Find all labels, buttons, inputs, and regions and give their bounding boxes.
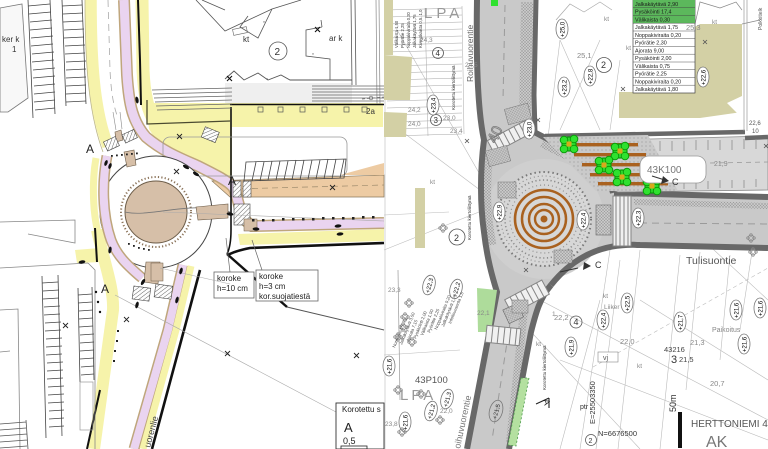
- svg-text:ker k: ker k: [2, 35, 20, 44]
- svg-text:A: A: [86, 142, 94, 156]
- svg-text:24,2: 24,2: [408, 107, 421, 114]
- svg-text:E=25503350: E=25503350: [588, 381, 597, 424]
- svg-text:+23,4: +23,4: [432, 97, 438, 113]
- svg-text:Jalkakäytävä 1,75: Jalkakäytävä 1,75: [635, 25, 678, 31]
- svg-text:Noppakiviraita 0,20: Noppakiviraita 0,20: [635, 79, 681, 85]
- svg-text:Pysäköinti 17,4: Pysäköinti 17,4: [635, 10, 672, 16]
- svg-text:Noppakiviraita 0,20: Noppakiviraita 0,20: [635, 33, 681, 39]
- svg-text:Noppakiviraita 0,20: Noppakiviraita 0,20: [406, 11, 411, 48]
- svg-text:1: 1: [552, 311, 556, 318]
- svg-text:21,3: 21,3: [690, 338, 705, 347]
- svg-text:Pysäköinti 2,00: Pysäköinti 2,00: [635, 56, 672, 62]
- svg-text:4: 4: [436, 49, 441, 58]
- svg-text:+21,6: +21,6: [388, 358, 394, 374]
- svg-text:N=6676500: N=6676500: [598, 429, 637, 438]
- svg-text:25,3: 25,3: [686, 23, 701, 32]
- svg-text:+21,6: +21,6: [404, 414, 410, 430]
- svg-text:C: C: [595, 260, 602, 270]
- svg-text:43K100: 43K100: [647, 165, 682, 176]
- svg-text:h=3 cm: h=3 cm: [259, 282, 286, 291]
- svg-text:Tulisuontie: Tulisuontie: [686, 255, 737, 267]
- svg-text:kt: kt: [604, 16, 609, 23]
- svg-text:„: „: [312, 50, 314, 56]
- svg-text:+23,2: +23,2: [563, 79, 569, 95]
- svg-text:24,5: 24,5: [465, 62, 478, 69]
- svg-text:2: 2: [601, 60, 606, 70]
- svg-text:kor.suojatiestä: kor.suojatiestä: [259, 292, 311, 301]
- svg-text:Jalkakäytävä 2,90: Jalkakäytävä 2,90: [635, 2, 678, 8]
- svg-text:+23,0: +23,0: [528, 121, 534, 137]
- svg-text:kt: kt: [712, 19, 717, 26]
- svg-text:+22,5: +22,5: [626, 295, 632, 311]
- svg-text:Korotettu kiertoliittymä: Korotettu kiertoliittymä: [542, 345, 547, 390]
- svg-text:AK: AK: [706, 434, 728, 449]
- svg-text:ptr: ptr: [580, 404, 589, 411]
- svg-text:2: 2: [454, 233, 459, 243]
- svg-text:+22,8: +22,8: [589, 68, 595, 84]
- svg-text:Korotettu kiertoliittymä: Korotettu kiertoliittymä: [467, 195, 472, 240]
- svg-text:+21,7: +21,7: [679, 314, 685, 330]
- svg-text:+22,9: +22,9: [498, 204, 504, 220]
- svg-text:Roihuvuorentie: Roihuvuorentie: [465, 25, 475, 82]
- svg-text:+22,6: +22,6: [702, 69, 708, 85]
- svg-text:10: 10: [752, 129, 759, 135]
- svg-text:Korotettu s: Korotettu s: [342, 405, 381, 414]
- svg-text:22,0: 22,0: [620, 337, 635, 346]
- svg-text:21,9: 21,9: [714, 161, 728, 168]
- svg-text:+21,9: +21,9: [570, 339, 576, 355]
- svg-text:0,5: 0,5: [343, 436, 356, 446]
- svg-text:50m: 50m: [668, 394, 678, 412]
- svg-text:+25,0: +25,0: [561, 21, 567, 37]
- svg-text:Pyörätie 2,25: Pyörätie 2,25: [635, 72, 667, 78]
- svg-text:23,8: 23,8: [385, 421, 398, 428]
- svg-text:h=10 cm: h=10 cm: [217, 284, 248, 293]
- svg-text:22,1: 22,1: [477, 310, 490, 317]
- svg-text:Paikoitus: Paikoitus: [712, 327, 741, 334]
- svg-text:kt: kt: [637, 363, 642, 370]
- svg-text:43216: 43216: [664, 345, 685, 354]
- svg-text:„: „: [263, 18, 265, 24]
- svg-text:20,7: 20,7: [710, 379, 725, 388]
- svg-text:„: „: [266, 75, 268, 81]
- svg-text:+22,4: +22,4: [582, 212, 588, 228]
- svg-text:+21,6: +21,6: [735, 302, 741, 318]
- svg-text:3: 3: [434, 116, 439, 125]
- svg-text:24,3: 24,3: [420, 37, 433, 44]
- svg-text:24,0: 24,0: [408, 121, 421, 128]
- svg-text:LPA: LPA: [424, 5, 463, 22]
- svg-text:C: C: [672, 177, 679, 187]
- svg-text:kt: kt: [430, 179, 435, 186]
- svg-text:1: 1: [12, 45, 17, 54]
- svg-text:A: A: [101, 282, 109, 296]
- svg-text:22,2: 22,2: [554, 313, 569, 322]
- svg-text:kt: kt: [536, 341, 541, 348]
- svg-text:Pyörätie 2,30: Pyörätie 2,30: [635, 41, 667, 47]
- svg-text:A: A: [228, 174, 236, 188]
- svg-text:vj: vj: [603, 355, 609, 362]
- svg-text:+22,3: +22,3: [637, 210, 643, 226]
- svg-text:Polkkitielk: Polkkitielk: [758, 7, 764, 30]
- svg-text:4: 4: [574, 317, 579, 327]
- svg-text:43P100: 43P100: [415, 375, 448, 386]
- svg-text:Pyörätie 2,25: Pyörätie 2,25: [400, 23, 405, 48]
- svg-text:23,0: 23,0: [443, 115, 456, 122]
- svg-text:kt: kt: [626, 45, 631, 52]
- svg-text:+22,4: +22,4: [602, 312, 608, 328]
- svg-text:Jalkakäytävä 1,75: Jalkakäytävä 1,75: [412, 14, 417, 48]
- svg-text:25,1: 25,1: [577, 51, 592, 60]
- svg-text:Ajorata 9,00: Ajorata 9,00: [635, 48, 664, 54]
- svg-text:2: 2: [589, 438, 593, 445]
- svg-text:Korotettu kiertoliittymä: Korotettu kiertoliittymä: [451, 65, 456, 110]
- svg-text:Liiker: Liiker: [604, 304, 620, 311]
- svg-text:3: 3: [671, 354, 677, 366]
- svg-text:ar k: ar k: [329, 34, 343, 43]
- svg-text:kt: kt: [243, 35, 250, 44]
- svg-text:koroke: koroke: [259, 272, 284, 281]
- svg-text:Välikaista 0,30: Välikaista 0,30: [635, 17, 670, 23]
- svg-text:Välikaista 1,50: Välikaista 1,50: [394, 20, 399, 48]
- svg-text:23,3: 23,3: [388, 287, 401, 294]
- svg-text:22,6: 22,6: [749, 121, 761, 127]
- svg-text:A: A: [344, 420, 353, 435]
- svg-text:+21,6: +21,6: [743, 336, 749, 352]
- svg-text:Jalkakäytävä 1,80: Jalkakäytävä 1,80: [635, 87, 678, 93]
- svg-text:HERTTONIEMI 4: HERTTONIEMI 4: [691, 419, 768, 430]
- svg-text:Välikaista 0,75: Välikaista 0,75: [635, 64, 670, 70]
- svg-text:2a: 2a: [366, 107, 375, 116]
- svg-text:+21,6: +21,6: [759, 300, 765, 316]
- svg-text:kt: kt: [603, 293, 608, 300]
- svg-text:23,4: 23,4: [450, 128, 463, 135]
- svg-text:2: 2: [275, 47, 281, 58]
- svg-text:21,5: 21,5: [679, 355, 694, 364]
